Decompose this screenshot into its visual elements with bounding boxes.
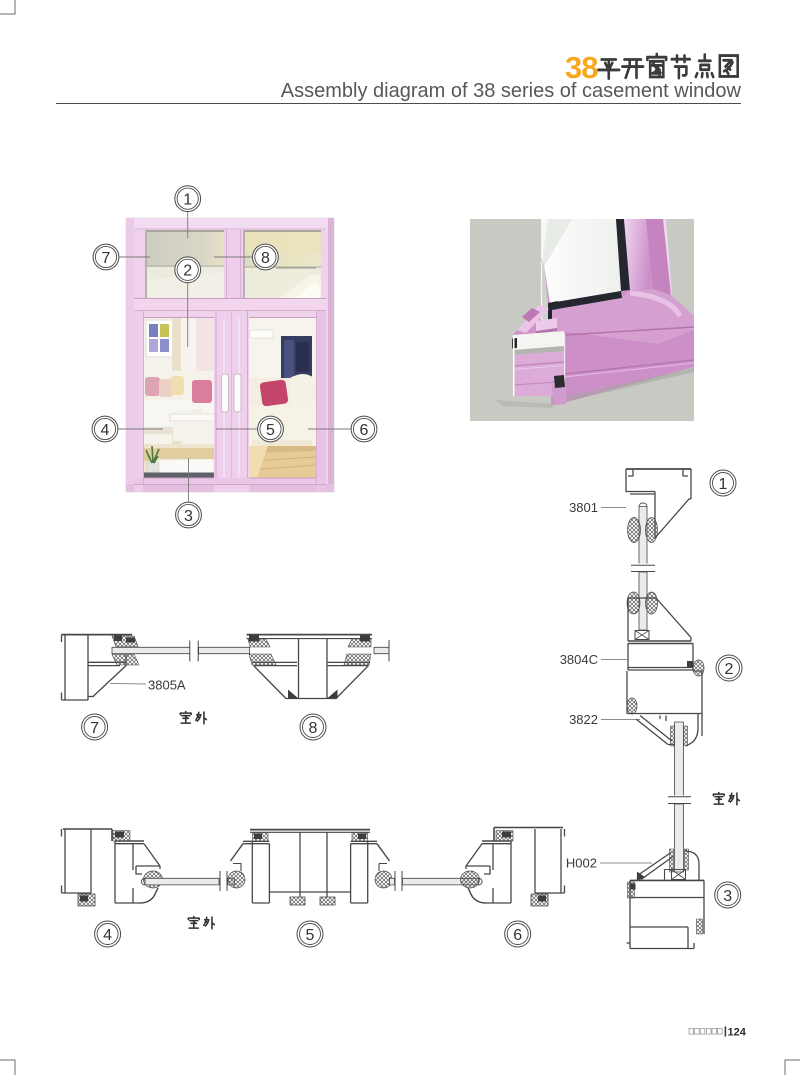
svg-text:3801: 3801 [569,500,598,515]
svg-text:1: 1 [719,476,728,493]
svg-text:6: 6 [360,422,369,439]
svg-text:7: 7 [90,720,99,737]
svg-text:5: 5 [306,927,315,944]
svg-text:Assembly diagram of 38 series: Assembly diagram of 38 series of casemen… [281,80,742,102]
svg-text:2: 2 [725,661,734,678]
svg-text:H002: H002 [566,856,597,871]
svg-text:8: 8 [309,720,318,737]
svg-text:3: 3 [723,888,732,905]
svg-text:124: 124 [728,1027,747,1039]
svg-text:6: 6 [513,927,522,944]
svg-text:3: 3 [184,508,193,525]
svg-text:1: 1 [183,192,192,209]
svg-text:3805A: 3805A [148,678,186,693]
svg-text:8: 8 [261,250,270,267]
svg-text:4: 4 [101,422,110,439]
svg-text:7: 7 [102,250,111,267]
svg-text:4: 4 [103,927,112,944]
svg-text:5: 5 [266,422,275,439]
svg-text:3804C: 3804C [560,652,598,667]
svg-text:3822: 3822 [569,712,598,727]
svg-text:2: 2 [183,263,192,280]
